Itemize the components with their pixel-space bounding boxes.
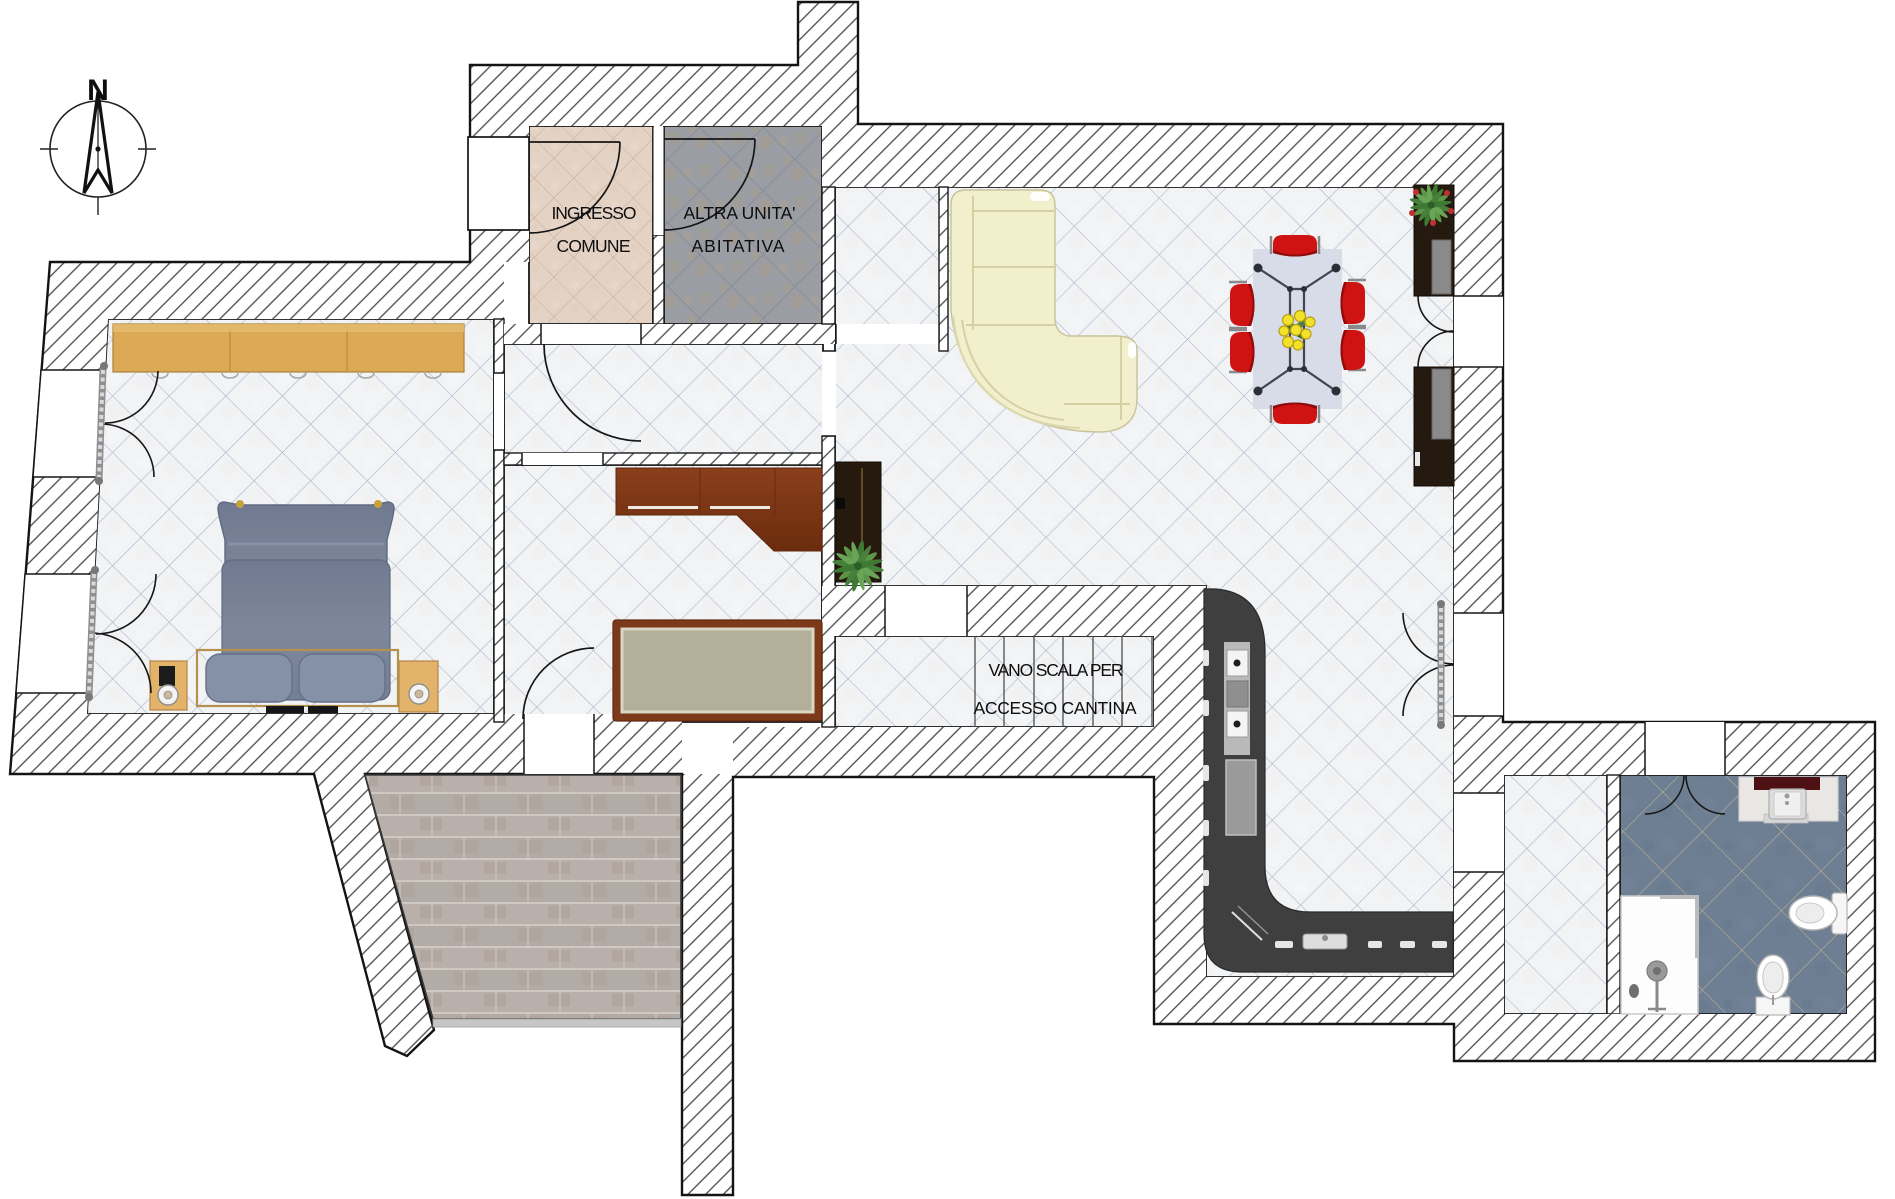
svg-text:ACCESSO CANTINA: ACCESSO CANTINA — [974, 698, 1137, 718]
svg-text:VANO SCALA PER: VANO SCALA PER — [989, 660, 1124, 680]
svg-text:N: N — [87, 74, 109, 107]
svg-text:INGRESSO: INGRESSO — [552, 203, 637, 223]
svg-text:ALTRA UNITA': ALTRA UNITA' — [684, 203, 796, 223]
svg-text:ABITATIVA: ABITATIVA — [692, 236, 785, 256]
svg-text:COMUNE: COMUNE — [557, 236, 631, 256]
